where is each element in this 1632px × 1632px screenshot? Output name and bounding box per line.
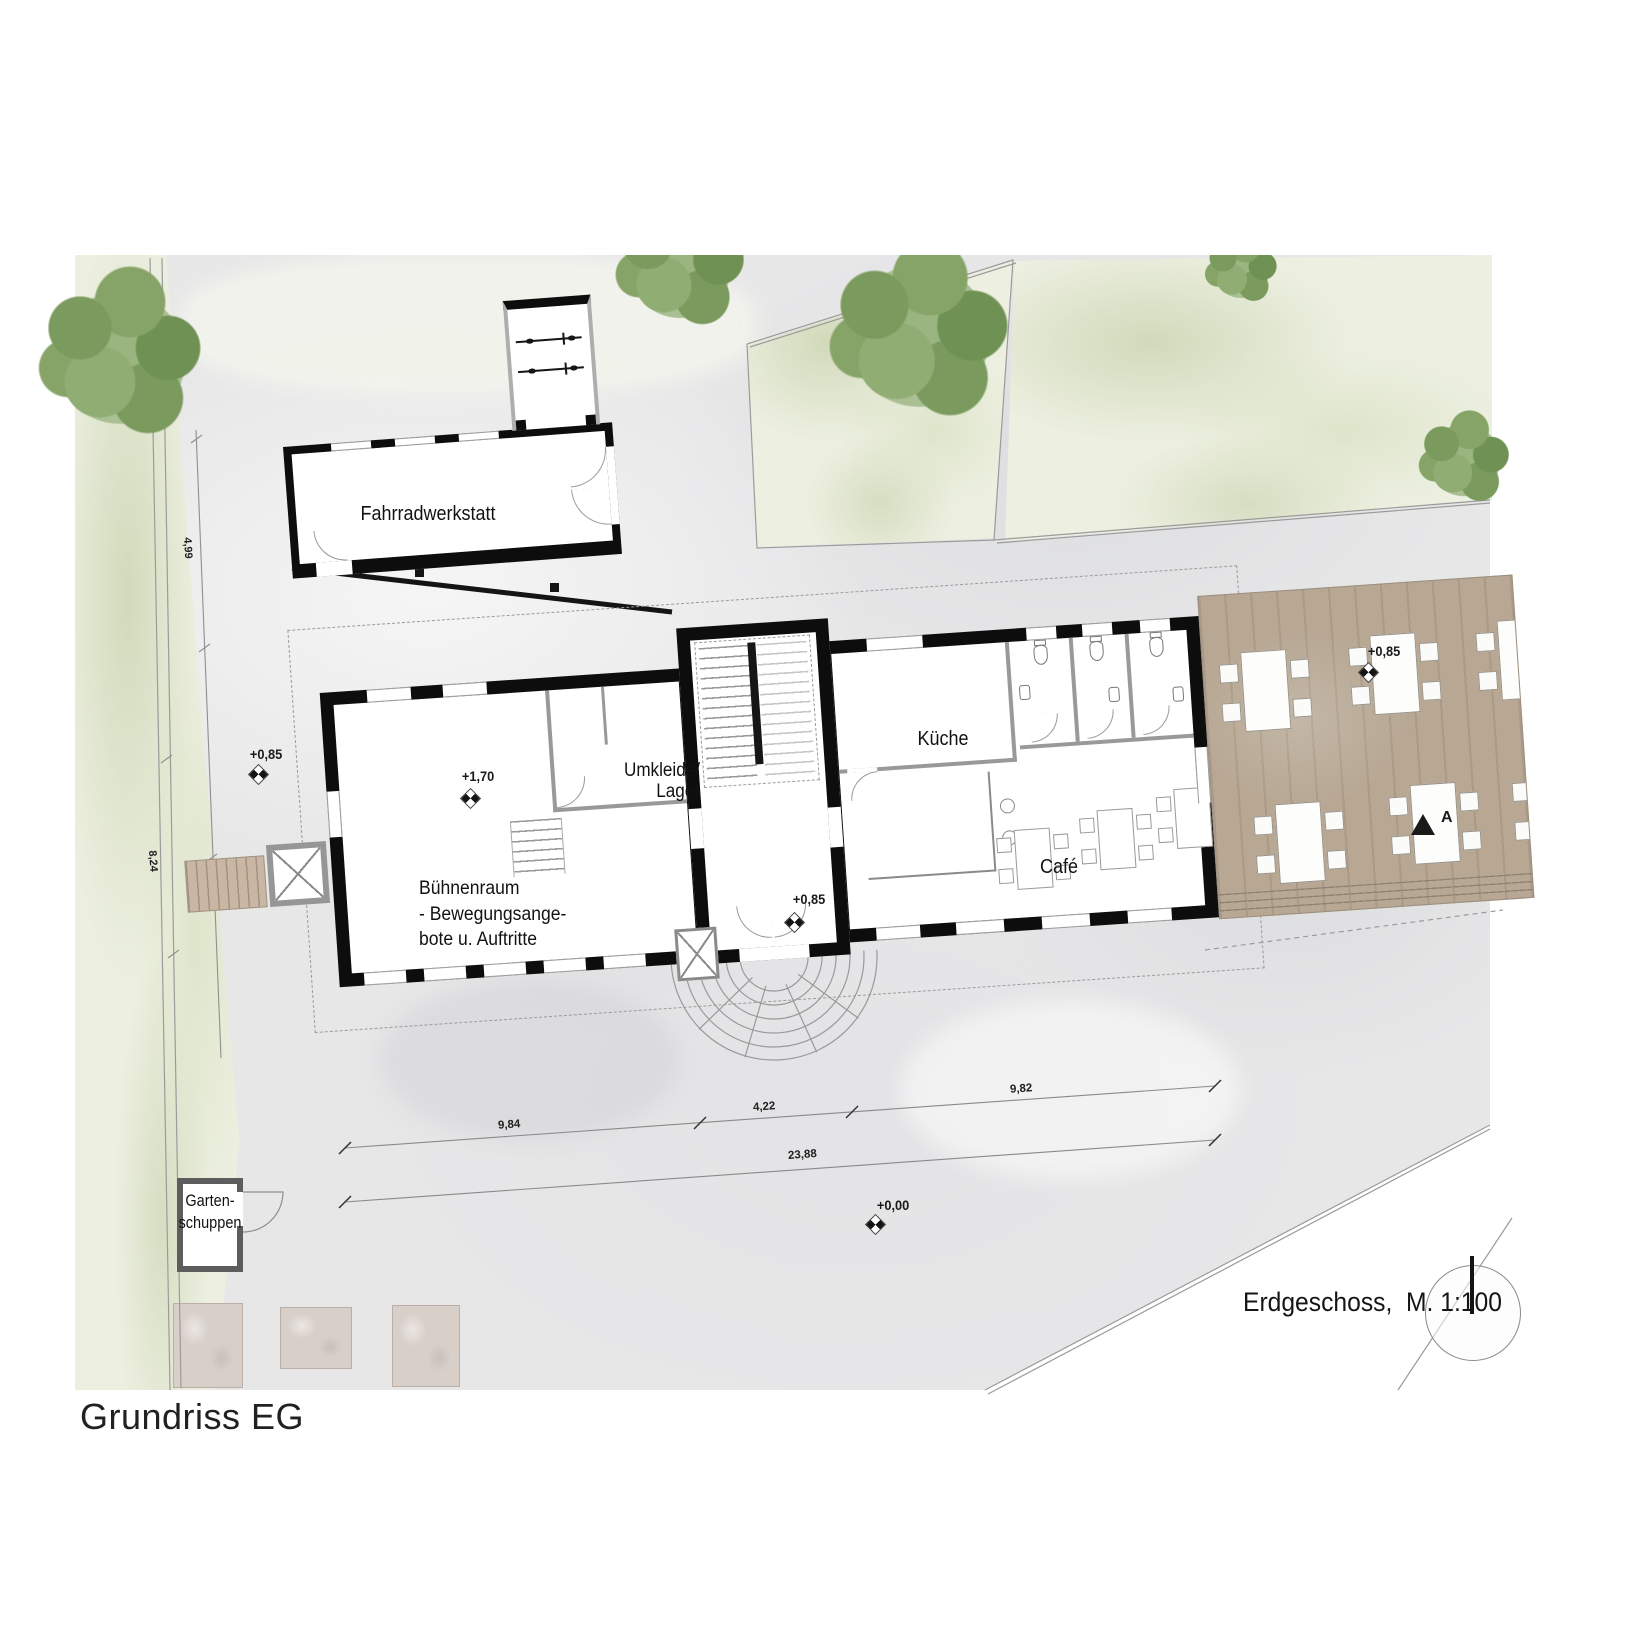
cafe-counter	[862, 772, 997, 880]
gartenschuppen-door-arc	[243, 1192, 283, 1232]
section-marker-label: A	[1441, 809, 1453, 827]
chair-icon	[1327, 850, 1347, 870]
room-label-gartenschuppen-line2: schuppen	[178, 1212, 241, 1234]
table-icon	[1274, 801, 1325, 884]
door-opening	[688, 808, 704, 849]
floor-plan-page: A Fahrradwerkstatt Umkleide/ Lager Küche…	[0, 0, 1632, 1632]
drawing-title: Erdgeschoss, M. 1:100	[1243, 1287, 1502, 1318]
platform-lift	[266, 841, 330, 907]
room-label-buehnenraum-line1: Bühnenraum	[419, 876, 566, 902]
window	[331, 440, 371, 451]
door-arc	[1030, 713, 1060, 743]
toilet-icon	[1089, 641, 1104, 662]
chair-icon	[1391, 835, 1411, 855]
door-opening	[828, 807, 844, 848]
door-arc	[568, 447, 609, 488]
toilet-icon	[1149, 636, 1164, 657]
level-label-terrace: +0,85	[1368, 644, 1400, 659]
chair-icon	[1475, 632, 1495, 652]
room-label-umkleide-line2: Lager	[603, 781, 700, 802]
chair-icon	[1219, 663, 1239, 683]
page-margin-top	[0, 0, 1632, 255]
chair-icon	[1253, 815, 1273, 835]
door-opening	[316, 560, 353, 577]
foyer-lift	[674, 927, 720, 982]
chair-icon	[1222, 702, 1242, 722]
wall-post	[550, 583, 559, 592]
window	[459, 431, 499, 442]
page-caption: Grundriss EG	[80, 1396, 304, 1438]
door-arc	[571, 487, 612, 528]
chair-icon	[1462, 830, 1482, 850]
window	[1140, 618, 1171, 633]
bike-parking-room	[503, 295, 600, 431]
door-arc	[1142, 705, 1172, 735]
level-label-site-left: +0,85	[250, 747, 282, 762]
chair-icon	[1136, 814, 1152, 830]
door-arc	[313, 529, 347, 563]
sink-icon	[1172, 686, 1184, 702]
wc-partition	[1125, 634, 1136, 738]
room-label-cafe: Café	[1014, 855, 1104, 880]
wooden-ramp-steps	[184, 855, 267, 912]
chair-icon	[1292, 698, 1312, 718]
stage-stair	[510, 818, 566, 877]
room-label-fahrradwerkstatt: Fahrradwerkstatt	[343, 502, 514, 527]
chair-icon	[1419, 642, 1439, 662]
chair-icon	[996, 837, 1012, 853]
chair-icon	[1256, 854, 1276, 874]
sink-icon	[1019, 685, 1031, 701]
door-arc	[736, 904, 772, 940]
tree-icon	[1408, 406, 1520, 514]
sink-icon	[1108, 687, 1120, 703]
window	[395, 436, 435, 447]
chair-icon	[1053, 833, 1069, 849]
dimension-label-total: 23,88	[788, 1148, 818, 1162]
chair-icon	[1156, 796, 1172, 812]
chair-icon	[1388, 796, 1408, 816]
dimension-label-seg1: 9,84	[498, 1118, 521, 1132]
chair-icon	[1351, 686, 1371, 706]
room-label-gartenschuppen-line1: Garten-	[178, 1190, 241, 1212]
dimension-label-left-lower: 8,24	[146, 850, 159, 872]
room-label-umkleide-line1: Umkleide/	[603, 760, 700, 781]
room-fahrradwerkstatt	[283, 422, 622, 578]
room-cafe-wing	[817, 616, 1219, 943]
room-label-gartenschuppen: Garten- schuppen	[178, 1190, 241, 1234]
chair-icon	[1079, 818, 1095, 834]
wc-partition	[1069, 638, 1080, 742]
window	[1082, 622, 1113, 637]
level-label-ground: +0,00	[877, 1198, 909, 1213]
bicycle-icon	[515, 330, 586, 349]
room-label-buehnenraum-line2: - Bewegungsange-	[419, 902, 566, 928]
room-kueche	[831, 642, 1017, 774]
dimension-label-left-upper: 4,99	[181, 537, 194, 559]
chair-icon	[1290, 659, 1310, 679]
chair-icon	[1158, 827, 1174, 843]
dimension-label-seg2: 4,22	[753, 1100, 776, 1114]
bicycle-icon	[518, 360, 589, 379]
chair-icon	[1422, 681, 1442, 701]
room-label-umkleide: Umkleide/ Lager	[603, 760, 700, 802]
chair-icon	[1138, 845, 1154, 861]
toilet-icon	[1033, 644, 1048, 665]
window	[1026, 626, 1057, 641]
stair-tower	[676, 618, 851, 965]
level-label-foyer: +0,85	[793, 892, 825, 907]
window	[367, 687, 412, 703]
stool-icon	[999, 798, 1015, 814]
terrace-deck	[1197, 575, 1534, 920]
door-arc	[1086, 709, 1116, 739]
chair-icon	[1478, 671, 1498, 691]
courtyard-wall	[292, 568, 672, 612]
stair-flight-upper	[756, 641, 815, 780]
chair-icon	[998, 868, 1014, 884]
wc-block	[1013, 630, 1194, 750]
chair-icon	[1459, 791, 1479, 811]
table-icon	[1409, 782, 1460, 865]
door-opening	[326, 791, 342, 838]
tree-icon	[808, 232, 1030, 440]
room-label-kueche: Küche	[898, 727, 988, 752]
table-icon	[1240, 649, 1291, 732]
window	[442, 682, 487, 698]
room-label-buehnenraum: Bühnenraum - Bewegungsange- bote u. Auft…	[419, 876, 566, 953]
room-label-buehnenraum-line3: bote u. Auftritte	[419, 927, 566, 953]
level-label-stage: +1,70	[462, 769, 494, 784]
chair-icon	[1324, 811, 1344, 831]
dimension-lines	[339, 1080, 1221, 1208]
dimension-label-seg3: 9,82	[1010, 1082, 1033, 1096]
tree-icon	[20, 258, 220, 458]
